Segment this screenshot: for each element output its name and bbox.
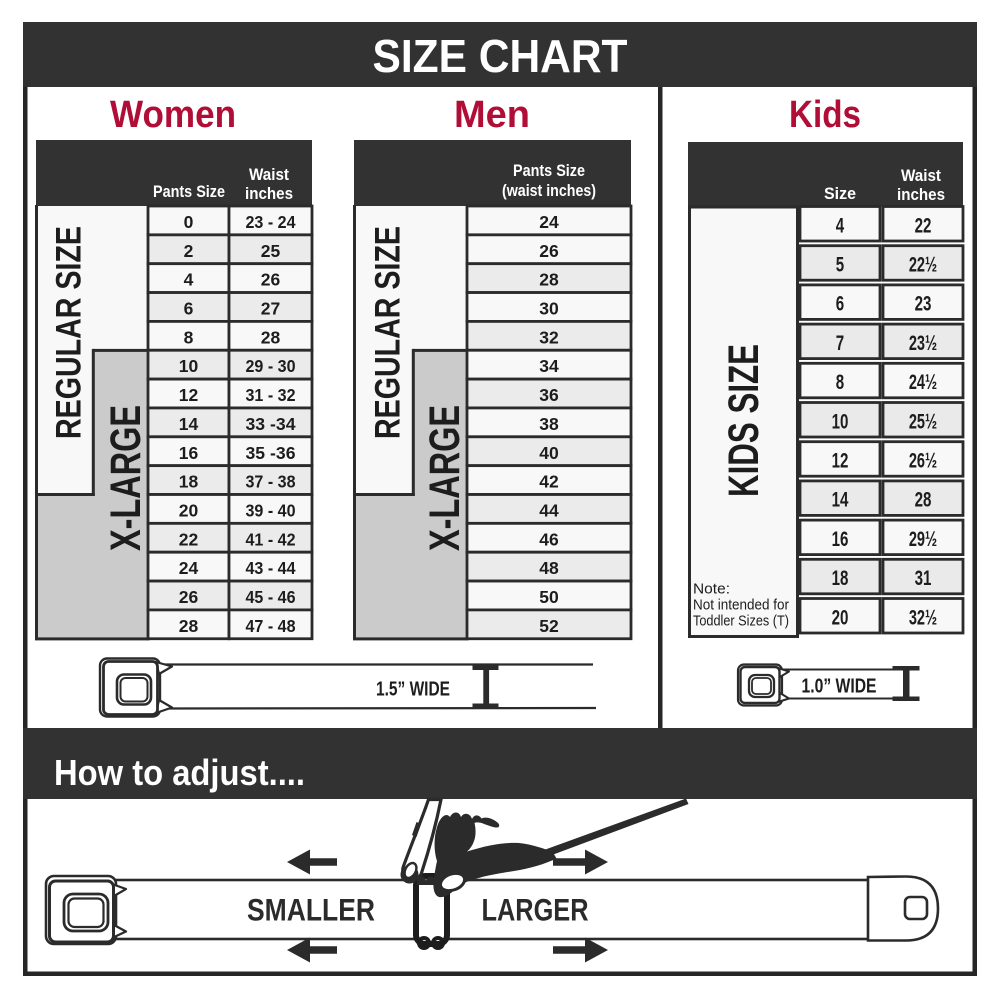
svg-text:44: 44 xyxy=(539,500,559,520)
svg-text:14: 14 xyxy=(179,414,199,434)
svg-text:46: 46 xyxy=(539,529,559,549)
svg-text:16: 16 xyxy=(179,443,199,463)
svg-text:41 - 42: 41 - 42 xyxy=(246,529,296,549)
svg-text:30: 30 xyxy=(539,299,559,319)
svg-text:Note:: Note: xyxy=(693,581,730,598)
svg-text:6: 6 xyxy=(184,299,194,319)
svg-text:Waist: Waist xyxy=(901,166,941,185)
svg-text:26: 26 xyxy=(539,241,559,261)
svg-text:28: 28 xyxy=(539,270,559,290)
svg-text:Women: Women xyxy=(110,94,236,136)
svg-text:36: 36 xyxy=(539,385,559,405)
svg-text:1.5” WIDE: 1.5” WIDE xyxy=(376,679,450,701)
svg-text:4: 4 xyxy=(836,214,845,237)
svg-text:31 - 32: 31 - 32 xyxy=(246,385,296,405)
svg-text:32: 32 xyxy=(539,327,559,347)
svg-text:10: 10 xyxy=(832,410,849,433)
svg-text:35 -36: 35 -36 xyxy=(246,443,296,463)
svg-text:23: 23 xyxy=(915,293,932,316)
svg-text:Size: Size xyxy=(824,184,856,203)
svg-text:8: 8 xyxy=(184,327,194,347)
svg-text:6: 6 xyxy=(836,293,844,316)
svg-text:31: 31 xyxy=(915,567,932,590)
svg-text:8: 8 xyxy=(836,371,845,394)
svg-text:LARGER: LARGER xyxy=(482,892,589,928)
svg-text:REGULAR SIZE: REGULAR SIZE xyxy=(368,226,408,439)
svg-text:23 - 24: 23 - 24 xyxy=(246,212,296,232)
svg-text:25: 25 xyxy=(261,241,281,261)
svg-text:7: 7 xyxy=(836,332,844,355)
svg-text:18: 18 xyxy=(179,472,199,492)
svg-text:22½: 22½ xyxy=(909,253,937,276)
svg-text:26: 26 xyxy=(261,270,281,290)
svg-text:50: 50 xyxy=(539,587,559,607)
svg-text:2: 2 xyxy=(184,241,194,261)
svg-text:28: 28 xyxy=(179,616,199,636)
svg-text:45 - 46: 45 - 46 xyxy=(246,587,296,607)
svg-text:37 - 38: 37 - 38 xyxy=(246,472,296,492)
svg-text:How to adjust....: How to adjust.... xyxy=(54,752,305,793)
svg-text:12: 12 xyxy=(179,385,199,405)
svg-text:18: 18 xyxy=(832,567,849,590)
svg-text:Pants Size: Pants Size xyxy=(153,182,225,201)
svg-text:39 - 40: 39 - 40 xyxy=(246,500,296,520)
svg-text:47 - 48: 47 - 48 xyxy=(246,616,296,636)
svg-text:20: 20 xyxy=(832,606,849,629)
svg-text:1.0” WIDE: 1.0” WIDE xyxy=(802,676,877,698)
svg-text:24: 24 xyxy=(539,212,559,232)
svg-text:42: 42 xyxy=(539,472,559,492)
svg-text:inches: inches xyxy=(245,184,293,203)
svg-text:X-LARGE: X-LARGE xyxy=(102,405,150,551)
svg-text:Not intended for: Not intended for xyxy=(693,597,789,614)
svg-text:20: 20 xyxy=(179,500,199,520)
svg-text:32½: 32½ xyxy=(909,606,937,629)
svg-text:33 -34: 33 -34 xyxy=(246,414,296,434)
svg-text:X-LARGE: X-LARGE xyxy=(421,405,469,551)
svg-text:23½: 23½ xyxy=(909,332,937,355)
svg-text:34: 34 xyxy=(539,356,559,376)
svg-text:14: 14 xyxy=(832,489,849,512)
svg-text:12: 12 xyxy=(832,449,849,472)
svg-text:inches: inches xyxy=(897,185,945,204)
svg-text:43 - 44: 43 - 44 xyxy=(246,558,296,578)
svg-text:38: 38 xyxy=(539,414,559,434)
svg-text:KIDS SIZE: KIDS SIZE xyxy=(720,344,768,497)
svg-text:Kids: Kids xyxy=(789,94,861,136)
svg-text:10: 10 xyxy=(179,356,199,376)
svg-text:28: 28 xyxy=(915,489,932,512)
svg-text:28: 28 xyxy=(261,327,281,347)
svg-text:29½: 29½ xyxy=(909,528,937,551)
svg-text:16: 16 xyxy=(832,528,849,551)
svg-text:26½: 26½ xyxy=(909,449,937,472)
svg-text:SMALLER: SMALLER xyxy=(247,892,375,928)
svg-text:Men: Men xyxy=(454,94,530,136)
svg-text:24: 24 xyxy=(179,558,199,578)
svg-text:52: 52 xyxy=(539,616,559,636)
svg-text:29 - 30: 29 - 30 xyxy=(246,356,296,376)
svg-text:REGULAR SIZE: REGULAR SIZE xyxy=(49,226,89,439)
svg-text:Waist: Waist xyxy=(249,165,289,184)
svg-text:25½: 25½ xyxy=(909,410,937,433)
svg-text:SIZE CHART: SIZE CHART xyxy=(373,30,628,82)
svg-text:27: 27 xyxy=(261,299,280,319)
svg-text:22: 22 xyxy=(915,214,932,237)
svg-text:4: 4 xyxy=(184,270,194,290)
svg-text:5: 5 xyxy=(836,253,845,276)
svg-text:(waist inches): (waist inches) xyxy=(502,181,596,200)
svg-text:26: 26 xyxy=(179,587,199,607)
svg-text:48: 48 xyxy=(539,558,559,578)
svg-text:24½: 24½ xyxy=(909,371,937,394)
svg-text:40: 40 xyxy=(539,443,559,463)
svg-text:Pants Size: Pants Size xyxy=(513,161,585,180)
svg-text:22: 22 xyxy=(179,529,199,549)
svg-text:Toddler Sizes (T): Toddler Sizes (T) xyxy=(693,613,789,630)
svg-text:0: 0 xyxy=(184,212,194,232)
